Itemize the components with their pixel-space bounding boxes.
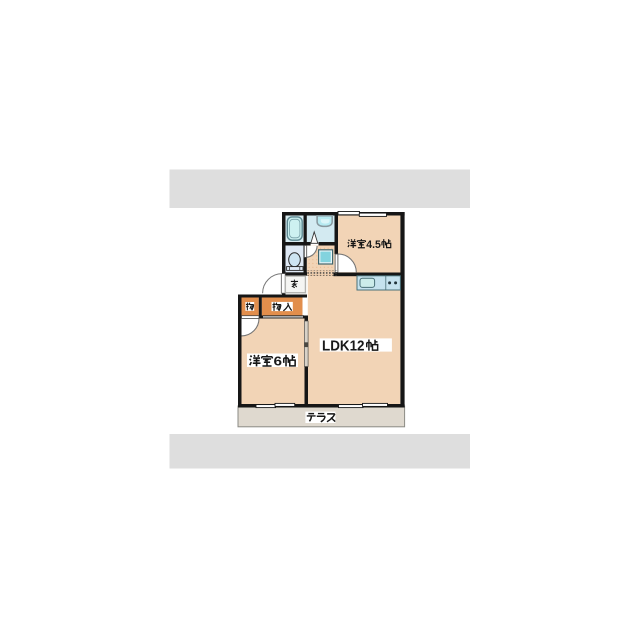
svg-text:LDK12: LDK12: [322, 337, 365, 354]
svg-text:6: 6: [274, 354, 283, 369]
svg-text:4.5: 4.5: [366, 239, 381, 251]
